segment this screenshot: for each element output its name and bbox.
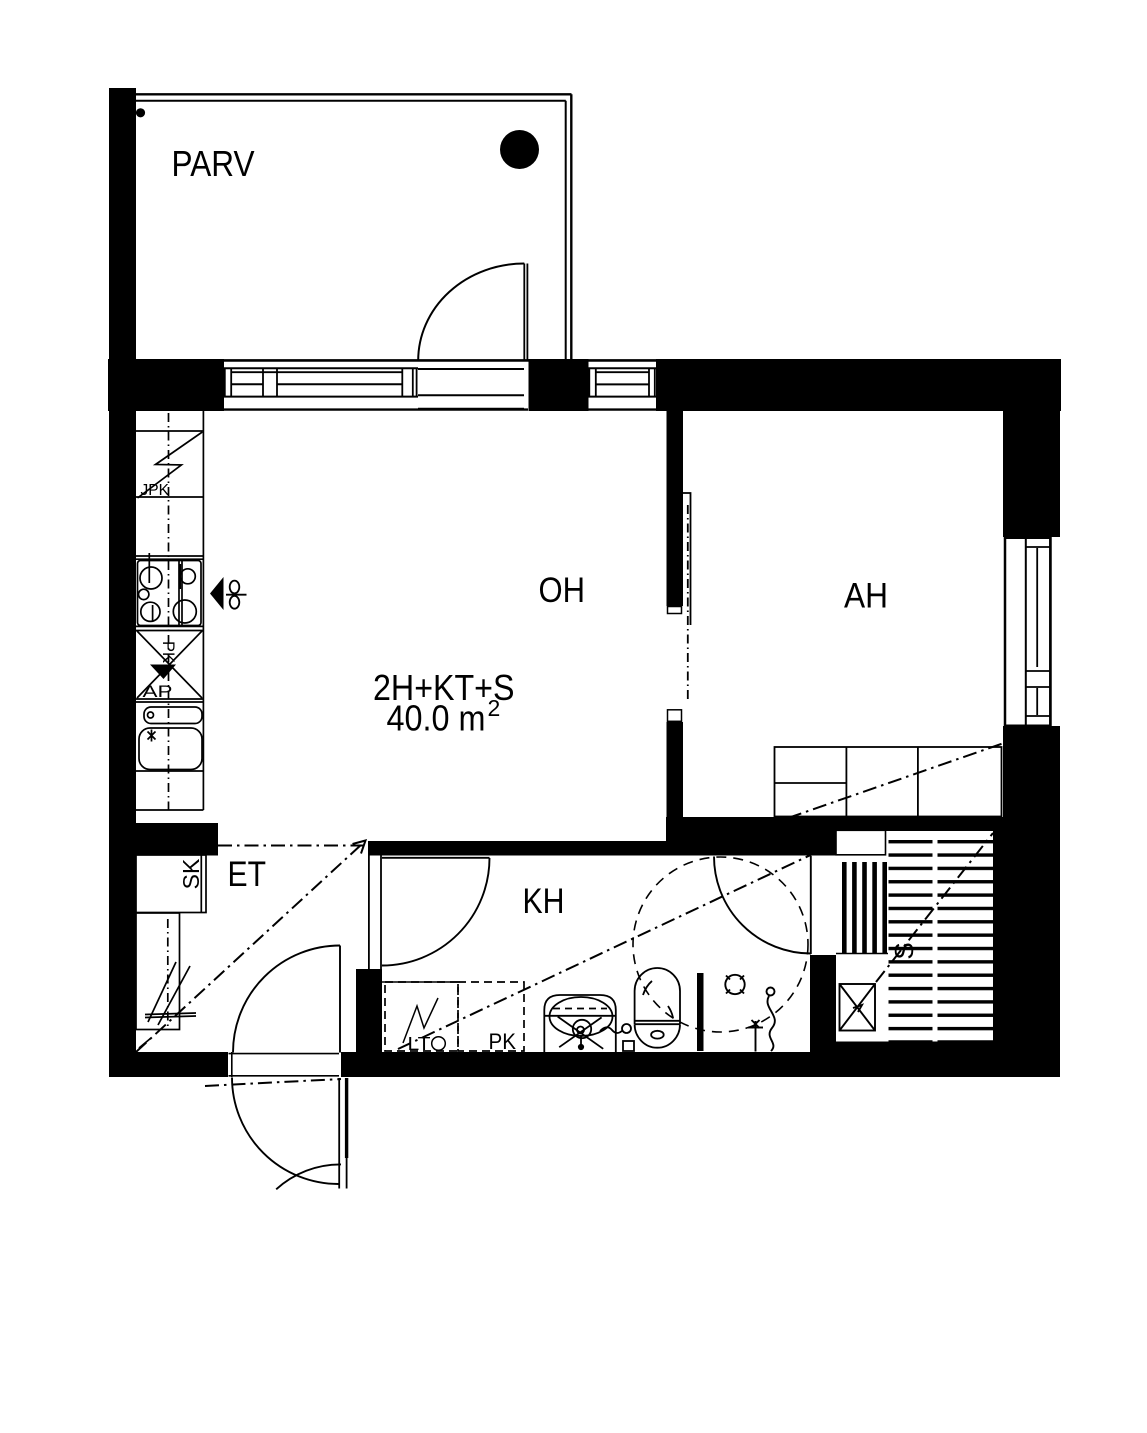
svg-text:AH: AH <box>844 576 888 616</box>
svg-text:ET: ET <box>228 854 267 894</box>
svg-text:40.0 m: 40.0 m <box>387 698 486 739</box>
svg-text:OH: OH <box>539 570 586 610</box>
svg-text:PK: PK <box>159 641 177 663</box>
svg-text:SK: SK <box>178 858 204 889</box>
svg-text:S: S <box>889 942 919 959</box>
svg-text:PK: PK <box>489 1029 517 1054</box>
svg-text:JPK: JPK <box>141 482 170 499</box>
svg-text:KH: KH <box>523 881 565 921</box>
svg-text:AP: AP <box>143 683 173 701</box>
svg-text:LT: LT <box>408 1034 431 1054</box>
svg-text:PARV: PARV <box>172 143 255 184</box>
svg-text:2: 2 <box>488 695 501 721</box>
